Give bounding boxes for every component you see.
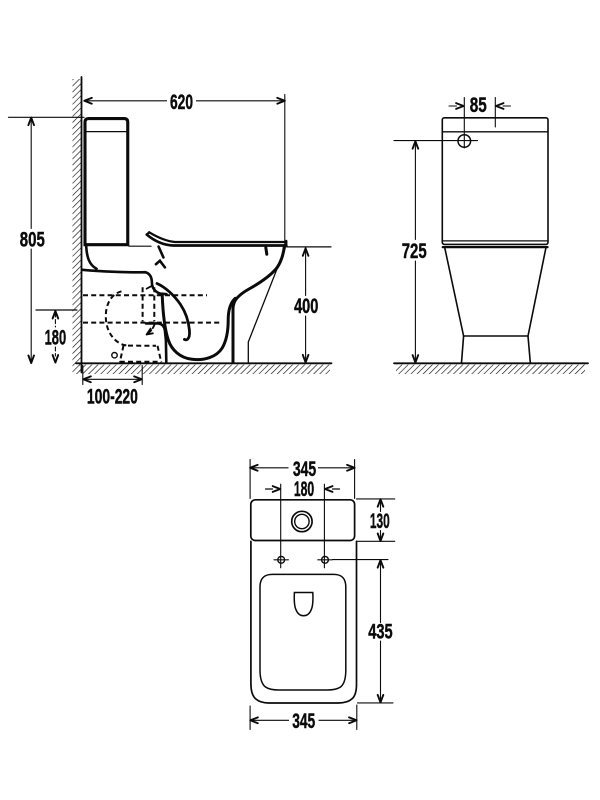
svg-text:345: 345 xyxy=(292,710,315,733)
svg-text:180: 180 xyxy=(45,326,67,349)
svg-text:805: 805 xyxy=(20,228,45,251)
svg-text:180: 180 xyxy=(294,478,314,501)
svg-text:400: 400 xyxy=(294,295,318,318)
svg-text:620: 620 xyxy=(170,91,193,114)
svg-text:100-220: 100-220 xyxy=(87,385,138,408)
svg-text:435: 435 xyxy=(368,621,393,644)
svg-text:85: 85 xyxy=(470,94,487,117)
svg-text:725: 725 xyxy=(402,240,427,263)
svg-text:130: 130 xyxy=(370,510,390,533)
